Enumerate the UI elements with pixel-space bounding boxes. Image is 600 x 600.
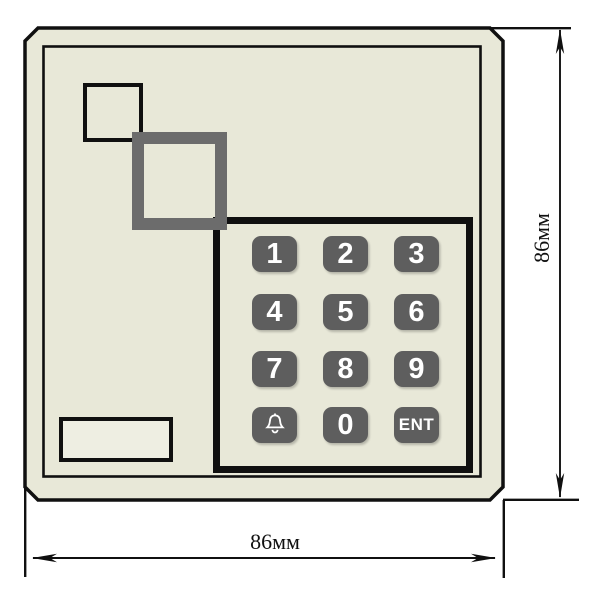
label-window-slot	[59, 417, 173, 462]
height-dimension-line	[556, 29, 564, 498]
bell-icon	[259, 409, 291, 441]
key-3[interactable]: 3	[394, 236, 439, 272]
key-6[interactable]: 6	[394, 294, 439, 330]
enter-key[interactable]: ENT	[394, 407, 439, 443]
key-5[interactable]: 5	[323, 294, 368, 330]
key-9[interactable]: 9	[394, 351, 439, 387]
width-dimension-line	[32, 554, 496, 562]
keypad-device-diagram: 1 2 3 4 5 6 7 8 9 0 ENT 86мм 86мм	[0, 0, 600, 600]
width-dimension-label: 86мм	[205, 529, 345, 555]
bell-key[interactable]	[252, 407, 297, 443]
key-7[interactable]: 7	[252, 351, 297, 387]
key-1[interactable]: 1	[252, 236, 297, 272]
diagram-drawing	[0, 0, 600, 600]
key-0[interactable]: 0	[323, 407, 368, 443]
key-2[interactable]: 2	[323, 236, 368, 272]
key-4[interactable]: 4	[252, 294, 297, 330]
key-8[interactable]: 8	[323, 351, 368, 387]
height-dimension-label: 86мм	[529, 178, 553, 298]
